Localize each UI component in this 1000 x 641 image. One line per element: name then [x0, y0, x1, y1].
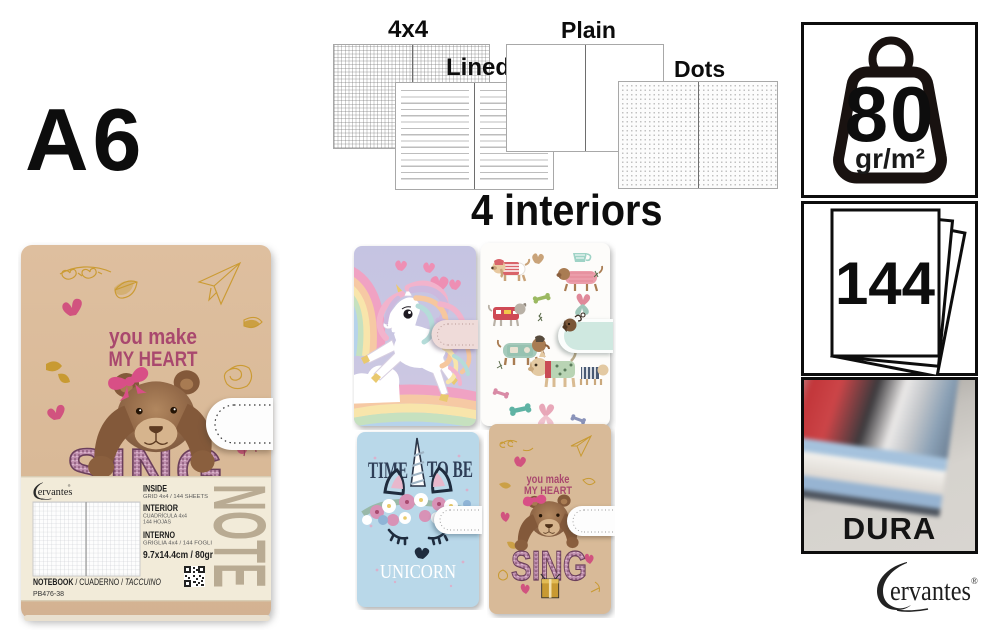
- svg-text:NOTEBOOK / CUADERNO / TACCUINO: NOTEBOOK / CUADERNO / TACCUINO: [33, 577, 161, 587]
- svg-text:INTERNO: INTERNO: [143, 530, 175, 540]
- svg-text:GRIGLIA 4x4 / 144 FOGLI: GRIGLIA 4x4 / 144 FOGLI: [143, 541, 212, 547]
- svg-text:UNICORN: UNICORN: [380, 561, 456, 583]
- svg-text:144 HOJAS: 144 HOJAS: [143, 520, 171, 526]
- svg-text:ervantes: ervantes: [890, 576, 971, 607]
- svg-text:you make: you make: [109, 324, 197, 349]
- svg-text:MY HEART: MY HEART: [109, 348, 198, 371]
- svg-text:®: ®: [68, 483, 71, 488]
- svg-text:ervantes: ervantes: [38, 487, 73, 498]
- svg-text:®: ®: [971, 576, 978, 586]
- svg-text:INSIDE: INSIDE: [143, 484, 167, 494]
- svg-text:PB476-38: PB476-38: [33, 591, 64, 598]
- svg-text:CUADRÍCULA 4x4: CUADRÍCULA 4x4: [143, 513, 187, 520]
- svg-text:gr/m²: gr/m²: [855, 143, 925, 174]
- svg-text:GRID 4x4 / 144 SHEETS: GRID 4x4 / 144 SHEETS: [143, 494, 208, 500]
- svg-text:NOTE: NOTE: [198, 484, 280, 588]
- svg-text:INTERIOR: INTERIOR: [143, 503, 178, 513]
- svg-text:144: 144: [835, 250, 936, 317]
- svg-text:9.7x14.4cm / 80gr: 9.7x14.4cm / 80gr: [143, 550, 213, 561]
